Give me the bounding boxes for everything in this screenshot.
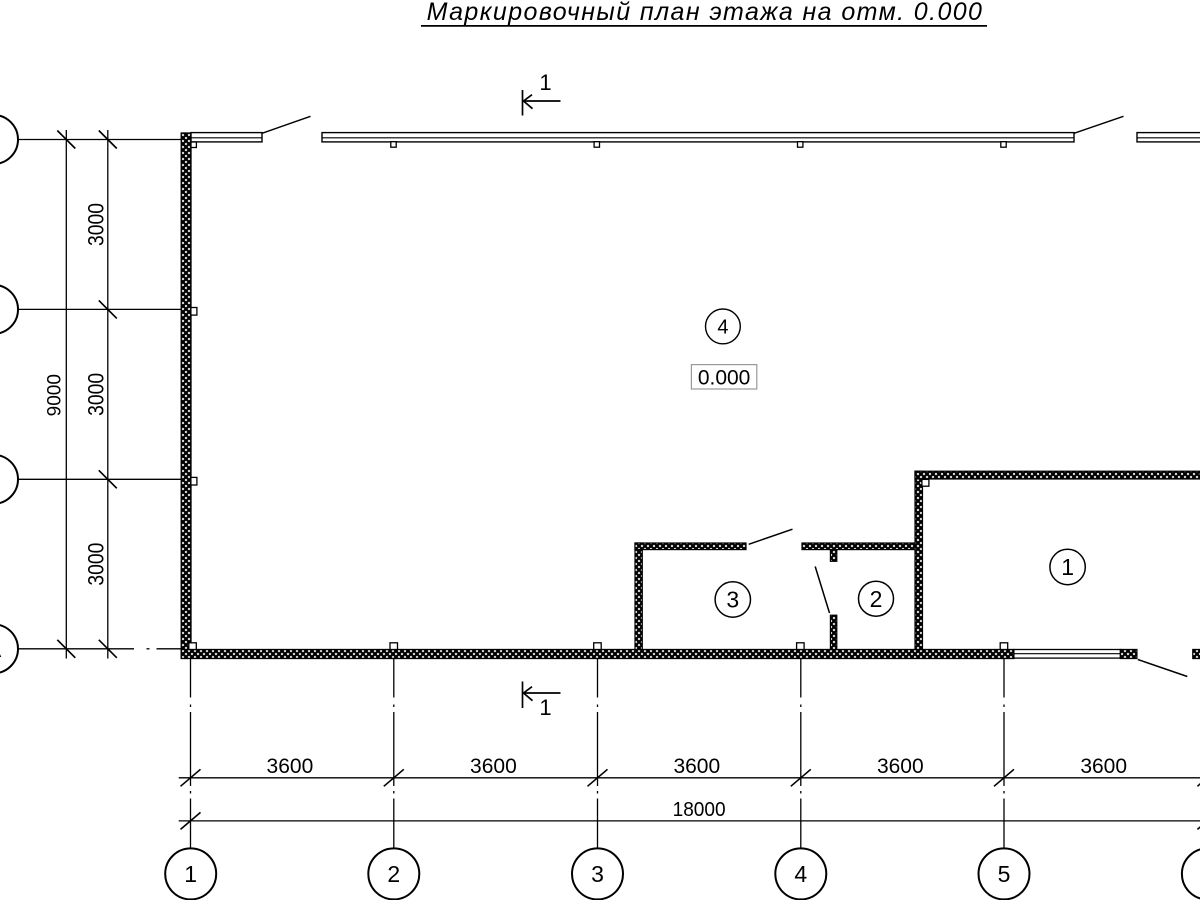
svg-text:1: 1 — [539, 695, 551, 720]
svg-text:3600: 3600 — [673, 755, 720, 778]
svg-text:3600: 3600 — [267, 755, 314, 778]
svg-text:1: 1 — [184, 861, 197, 887]
svg-text:2: 2 — [870, 586, 883, 612]
svg-text:3000: 3000 — [84, 543, 109, 586]
svg-text:18000: 18000 — [673, 799, 726, 821]
svg-text:4: 4 — [717, 317, 728, 339]
svg-text:3600: 3600 — [470, 755, 517, 778]
svg-text:2: 2 — [387, 861, 400, 887]
svg-text:3: 3 — [591, 861, 604, 887]
svg-text:0.000: 0.000 — [698, 366, 751, 389]
svg-text:5: 5 — [998, 861, 1011, 887]
svg-text:Маркировочный план этажа на от: Маркировочный план этажа на отм. 0.000 — [427, 0, 984, 26]
svg-text:В: В — [0, 297, 1, 323]
svg-text:Б: Б — [0, 467, 1, 493]
svg-text:3: 3 — [726, 587, 739, 613]
svg-text:3600: 3600 — [877, 755, 924, 778]
svg-text:1: 1 — [1061, 554, 1074, 580]
svg-text:9000: 9000 — [44, 374, 65, 416]
svg-text:1: 1 — [539, 70, 551, 95]
svg-text:3600: 3600 — [1080, 755, 1127, 778]
svg-text:3000: 3000 — [84, 203, 109, 246]
svg-text:3000: 3000 — [84, 373, 109, 416]
svg-text:4: 4 — [794, 861, 807, 887]
